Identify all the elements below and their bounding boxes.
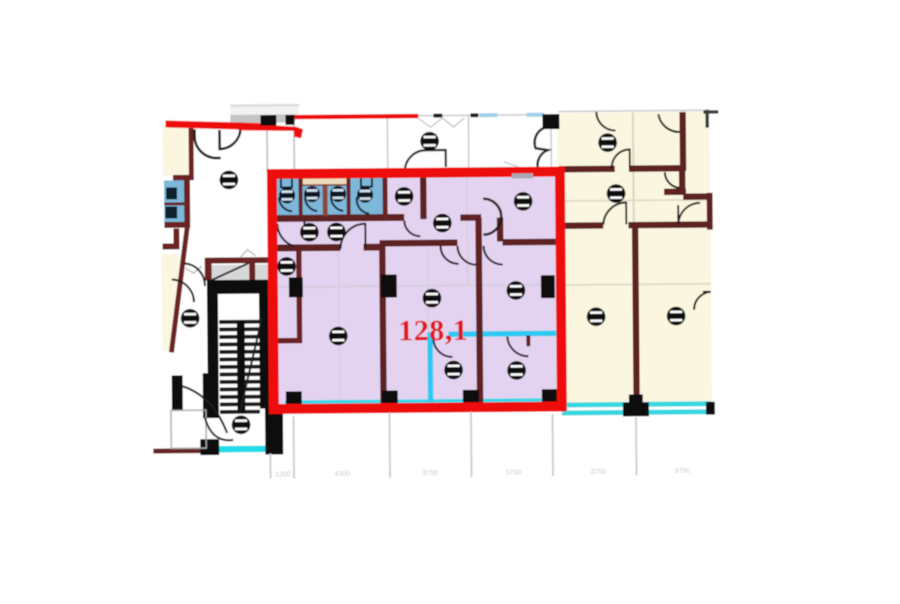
svg-text:3750: 3750 xyxy=(590,469,606,476)
svg-text:4300: 4300 xyxy=(334,471,350,478)
svg-text:3750: 3750 xyxy=(422,470,438,477)
svg-text:3750: 3750 xyxy=(505,469,521,476)
svg-text:128,1: 128,1 xyxy=(398,314,468,348)
svg-text:1200: 1200 xyxy=(275,471,291,478)
svg-text:3750: 3750 xyxy=(674,468,690,475)
